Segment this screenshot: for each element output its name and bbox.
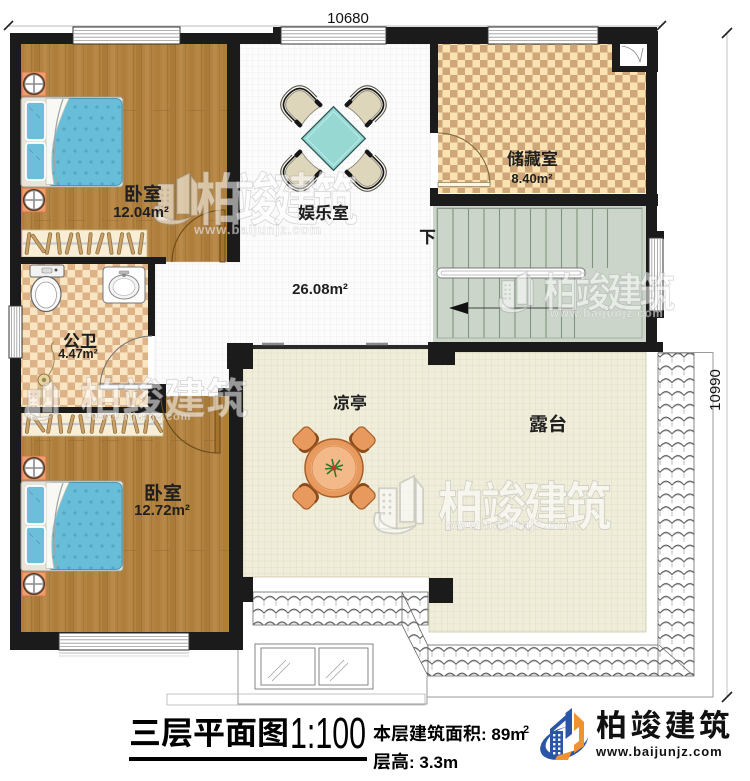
svg-text:: 89m: : 89m: [481, 725, 525, 744]
svg-text:10680: 10680: [327, 10, 369, 27]
svg-text:12.72m²: 12.72m²: [134, 502, 190, 519]
svg-text:8.40m²: 8.40m²: [511, 171, 553, 186]
svg-text:www.baijunjz.com: www.baijunjz.com: [81, 411, 191, 423]
svg-text:www.baijunjz.com: www.baijunjz.com: [549, 308, 664, 320]
svg-text:www.baijunjz.com: www.baijunjz.com: [193, 222, 322, 237]
svg-text:: 3.3m: : 3.3m: [409, 753, 458, 772]
svg-text:26.08m²: 26.08m²: [292, 281, 348, 298]
svg-text:10990: 10990: [707, 369, 724, 411]
svg-text:www.baijunjz.com: www.baijunjz.com: [444, 517, 579, 532]
svg-text:12.04m²: 12.04m²: [113, 204, 169, 221]
svg-text:www.baijunjz.com: www.baijunjz.com: [595, 744, 723, 759]
svg-text:1:100: 1:100: [290, 709, 366, 758]
svg-text:2: 2: [523, 724, 529, 736]
svg-text:4.47m²: 4.47m²: [58, 347, 98, 361]
